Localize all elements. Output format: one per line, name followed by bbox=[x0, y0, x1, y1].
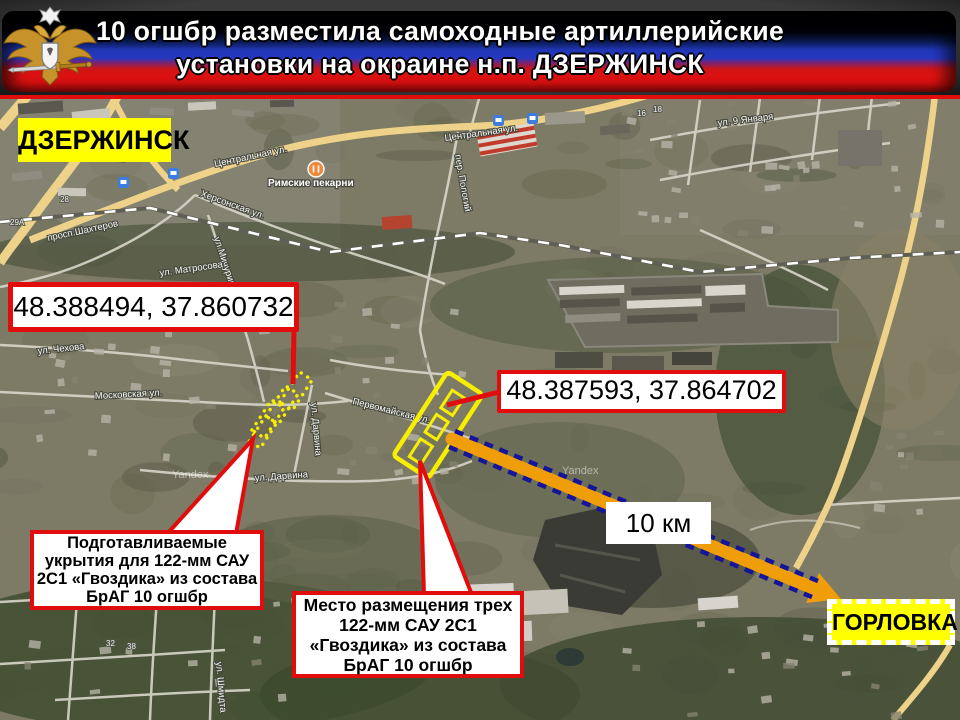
title-banner: 10 огшбр разместила самоходные артиллери… bbox=[0, 0, 960, 95]
callout-line: Подготавливаемые bbox=[34, 534, 260, 552]
title-line-1: 10 огшбр разместила самоходные артиллери… bbox=[96, 16, 784, 47]
house-number: 18 bbox=[653, 105, 662, 114]
house-number: 32 bbox=[106, 639, 115, 648]
map-watermark: Yandex bbox=[172, 469, 209, 481]
briefing-slide: Римские пекарни Центральная ул. Централь… bbox=[0, 0, 960, 720]
slide-title: 10 огшбр разместила самоходные артиллери… bbox=[0, 0, 880, 95]
callout-line: 122-мм САУ 2С1 bbox=[296, 615, 520, 635]
city-label-gorlovka: ГОРЛОВКА bbox=[827, 599, 955, 645]
callout-line: Место размещения трех bbox=[296, 595, 520, 615]
callout-line: БрАГ 10 огшбр bbox=[296, 655, 520, 675]
callout-line: БрАГ 10 огшбр bbox=[34, 588, 260, 606]
coordinate-box-2: 48.387593, 37.864702 bbox=[497, 370, 786, 413]
armed-forces-emblem-icon bbox=[0, 3, 100, 93]
banner-divider-line bbox=[0, 95, 960, 99]
restaurant-icon bbox=[308, 161, 324, 177]
house-number: 16 bbox=[637, 109, 646, 118]
callout-line: укрытия для 122-мм САУ bbox=[34, 552, 260, 570]
callout-artillery-position: Место размещения трех 122-мм САУ 2С1 «Гв… bbox=[292, 591, 524, 678]
callout-prepared-shelters: Подготавливаемые укрытия для 122-мм САУ … bbox=[30, 530, 264, 610]
distance-label: 10 км bbox=[606, 502, 711, 544]
pond bbox=[556, 648, 584, 666]
title-line-2: установки на окраине н.п. ДЗЕРЖИНСК bbox=[176, 49, 704, 80]
house-number: 29А bbox=[10, 218, 25, 227]
coordinate-box-1: 48.388494, 37.860732 bbox=[8, 282, 299, 332]
city-label-dzerzhinsk: ДЗЕРЖИНСК bbox=[18, 118, 171, 162]
callout-line: «Гвоздика» из состава bbox=[296, 635, 520, 655]
poi-label: Римские пекарни bbox=[268, 178, 354, 189]
house-number: 28 bbox=[60, 195, 69, 204]
house-number: 38 bbox=[127, 642, 136, 651]
callout-line: 2С1 «Гвоздика» из состава bbox=[34, 570, 260, 588]
